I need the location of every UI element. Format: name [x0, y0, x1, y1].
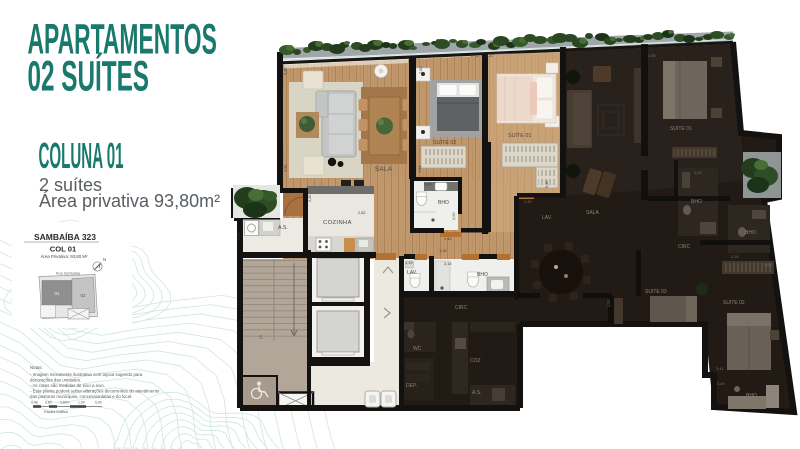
svg-text:Notas:: Notas: — [30, 365, 43, 370]
svg-text:SALA: SALA — [375, 166, 393, 173]
svg-text:5,36: 5,36 — [544, 180, 549, 188]
svg-text:3,03: 3,03 — [764, 262, 772, 267]
svg-text:1,69: 1,69 — [424, 182, 432, 187]
svg-text:3,49: 3,49 — [717, 381, 725, 386]
svg-text:CIRC: CIRC — [455, 305, 468, 311]
svg-text:5,30: 5,30 — [283, 67, 288, 75]
svg-text:2,00: 2,00 — [451, 212, 456, 220]
svg-text:Área Privativa: 93,80 M²: Área Privativa: 93,80 M² — [40, 254, 88, 259]
svg-text:02: 02 — [80, 293, 86, 298]
svg-text:4,61: 4,61 — [417, 165, 422, 173]
svg-text:2,82: 2,82 — [358, 210, 366, 215]
svg-text:das posturas municipais, conce: das posturas municipais, concessionárias… — [30, 394, 132, 399]
svg-text:COZINHA: COZINHA — [323, 220, 352, 226]
svg-text:SUITE 02: SUITE 02 — [723, 300, 745, 306]
svg-text:7,60: 7,60 — [418, 66, 423, 74]
svg-text:decorações das unidades.: decorações das unidades. — [30, 378, 81, 383]
svg-text:BHO: BHO — [691, 199, 702, 205]
svg-text:3,41: 3,41 — [716, 366, 724, 371]
svg-text:5,00: 5,00 — [95, 401, 102, 405]
svg-text:2,55: 2,55 — [606, 299, 611, 307]
svg-text:DEP.: DEP. — [406, 383, 417, 389]
svg-text:1,40: 1,40 — [236, 232, 241, 240]
svg-text:1,00: 1,00 — [78, 401, 85, 405]
svg-text:BHO: BHO — [438, 200, 449, 206]
svg-text:A.S.: A.S. — [472, 390, 481, 396]
svg-text:2,10: 2,10 — [731, 254, 739, 259]
svg-text:SUITE 03: SUITE 03 — [645, 289, 667, 295]
svg-text:SAMBAÍBA 323: SAMBAÍBA 323 — [34, 232, 96, 242]
svg-text:2,95: 2,95 — [648, 53, 656, 58]
svg-text:01: 01 — [54, 291, 60, 296]
svg-text:WC: WC — [413, 346, 422, 352]
svg-text:LAV.: LAV. — [407, 270, 417, 276]
svg-text:SALA: SALA — [586, 210, 599, 216]
svg-text:SUITE 01: SUITE 01 — [670, 126, 692, 132]
svg-text:3,14: 3,14 — [444, 261, 452, 266]
svg-text:- As cotas são medidas de eixo: - As cotas são medidas de eixo a eixo. — [30, 383, 105, 388]
svg-text:Área privativa 93,80m²: Área privativa 93,80m² — [39, 191, 220, 211]
svg-text:COLUNA 01: COLUNA 01 — [39, 135, 124, 175]
svg-text:N: N — [103, 257, 106, 262]
svg-text:- Imagem meramente ilustrativa: - Imagem meramente ilustrativa com layou… — [30, 372, 143, 377]
svg-text:SUÍTE 01: SUÍTE 01 — [508, 132, 531, 139]
svg-text:BHO: BHO — [477, 272, 488, 278]
svg-text:1,93: 1,93 — [694, 170, 702, 175]
svg-text:1,46: 1,46 — [444, 236, 452, 241]
svg-text:0,80: 0,80 — [45, 401, 52, 405]
svg-text:SUÍTE 02: SUÍTE 02 — [433, 139, 456, 146]
svg-text:LAV.: LAV. — [542, 215, 552, 221]
svg-text:CIRC: CIRC — [678, 244, 691, 250]
svg-text:1,19: 1,19 — [405, 260, 413, 265]
svg-text:2,30: 2,30 — [307, 194, 312, 202]
svg-text:Escala Gráfica: Escala Gráfica — [44, 410, 67, 414]
svg-text:A.S.: A.S. — [278, 225, 288, 231]
svg-text:1,49: 1,49 — [524, 199, 532, 204]
svg-text:1,19: 1,19 — [439, 248, 447, 253]
svg-text:2,53: 2,53 — [259, 209, 267, 214]
svg-text:2,87: 2,87 — [486, 53, 494, 58]
svg-text:- Esta planta poderá sofrer al: - Esta planta poderá sofrer alterações d… — [30, 389, 160, 394]
svg-text:02 SUÍTES: 02 SUÍTES — [28, 51, 149, 100]
svg-text:COL 01: COL 01 — [50, 245, 77, 254]
svg-text:S: S — [259, 335, 263, 341]
svg-text:0,40: 0,40 — [31, 401, 38, 405]
svg-text:0,80m: 0,80m — [60, 401, 70, 405]
svg-text:BHO: BHO — [745, 230, 756, 236]
svg-text:BHO: BHO — [746, 393, 757, 399]
svg-text:4,91: 4,91 — [283, 164, 288, 172]
svg-text:2,71: 2,71 — [471, 53, 479, 58]
svg-text:COZ: COZ — [470, 358, 481, 364]
